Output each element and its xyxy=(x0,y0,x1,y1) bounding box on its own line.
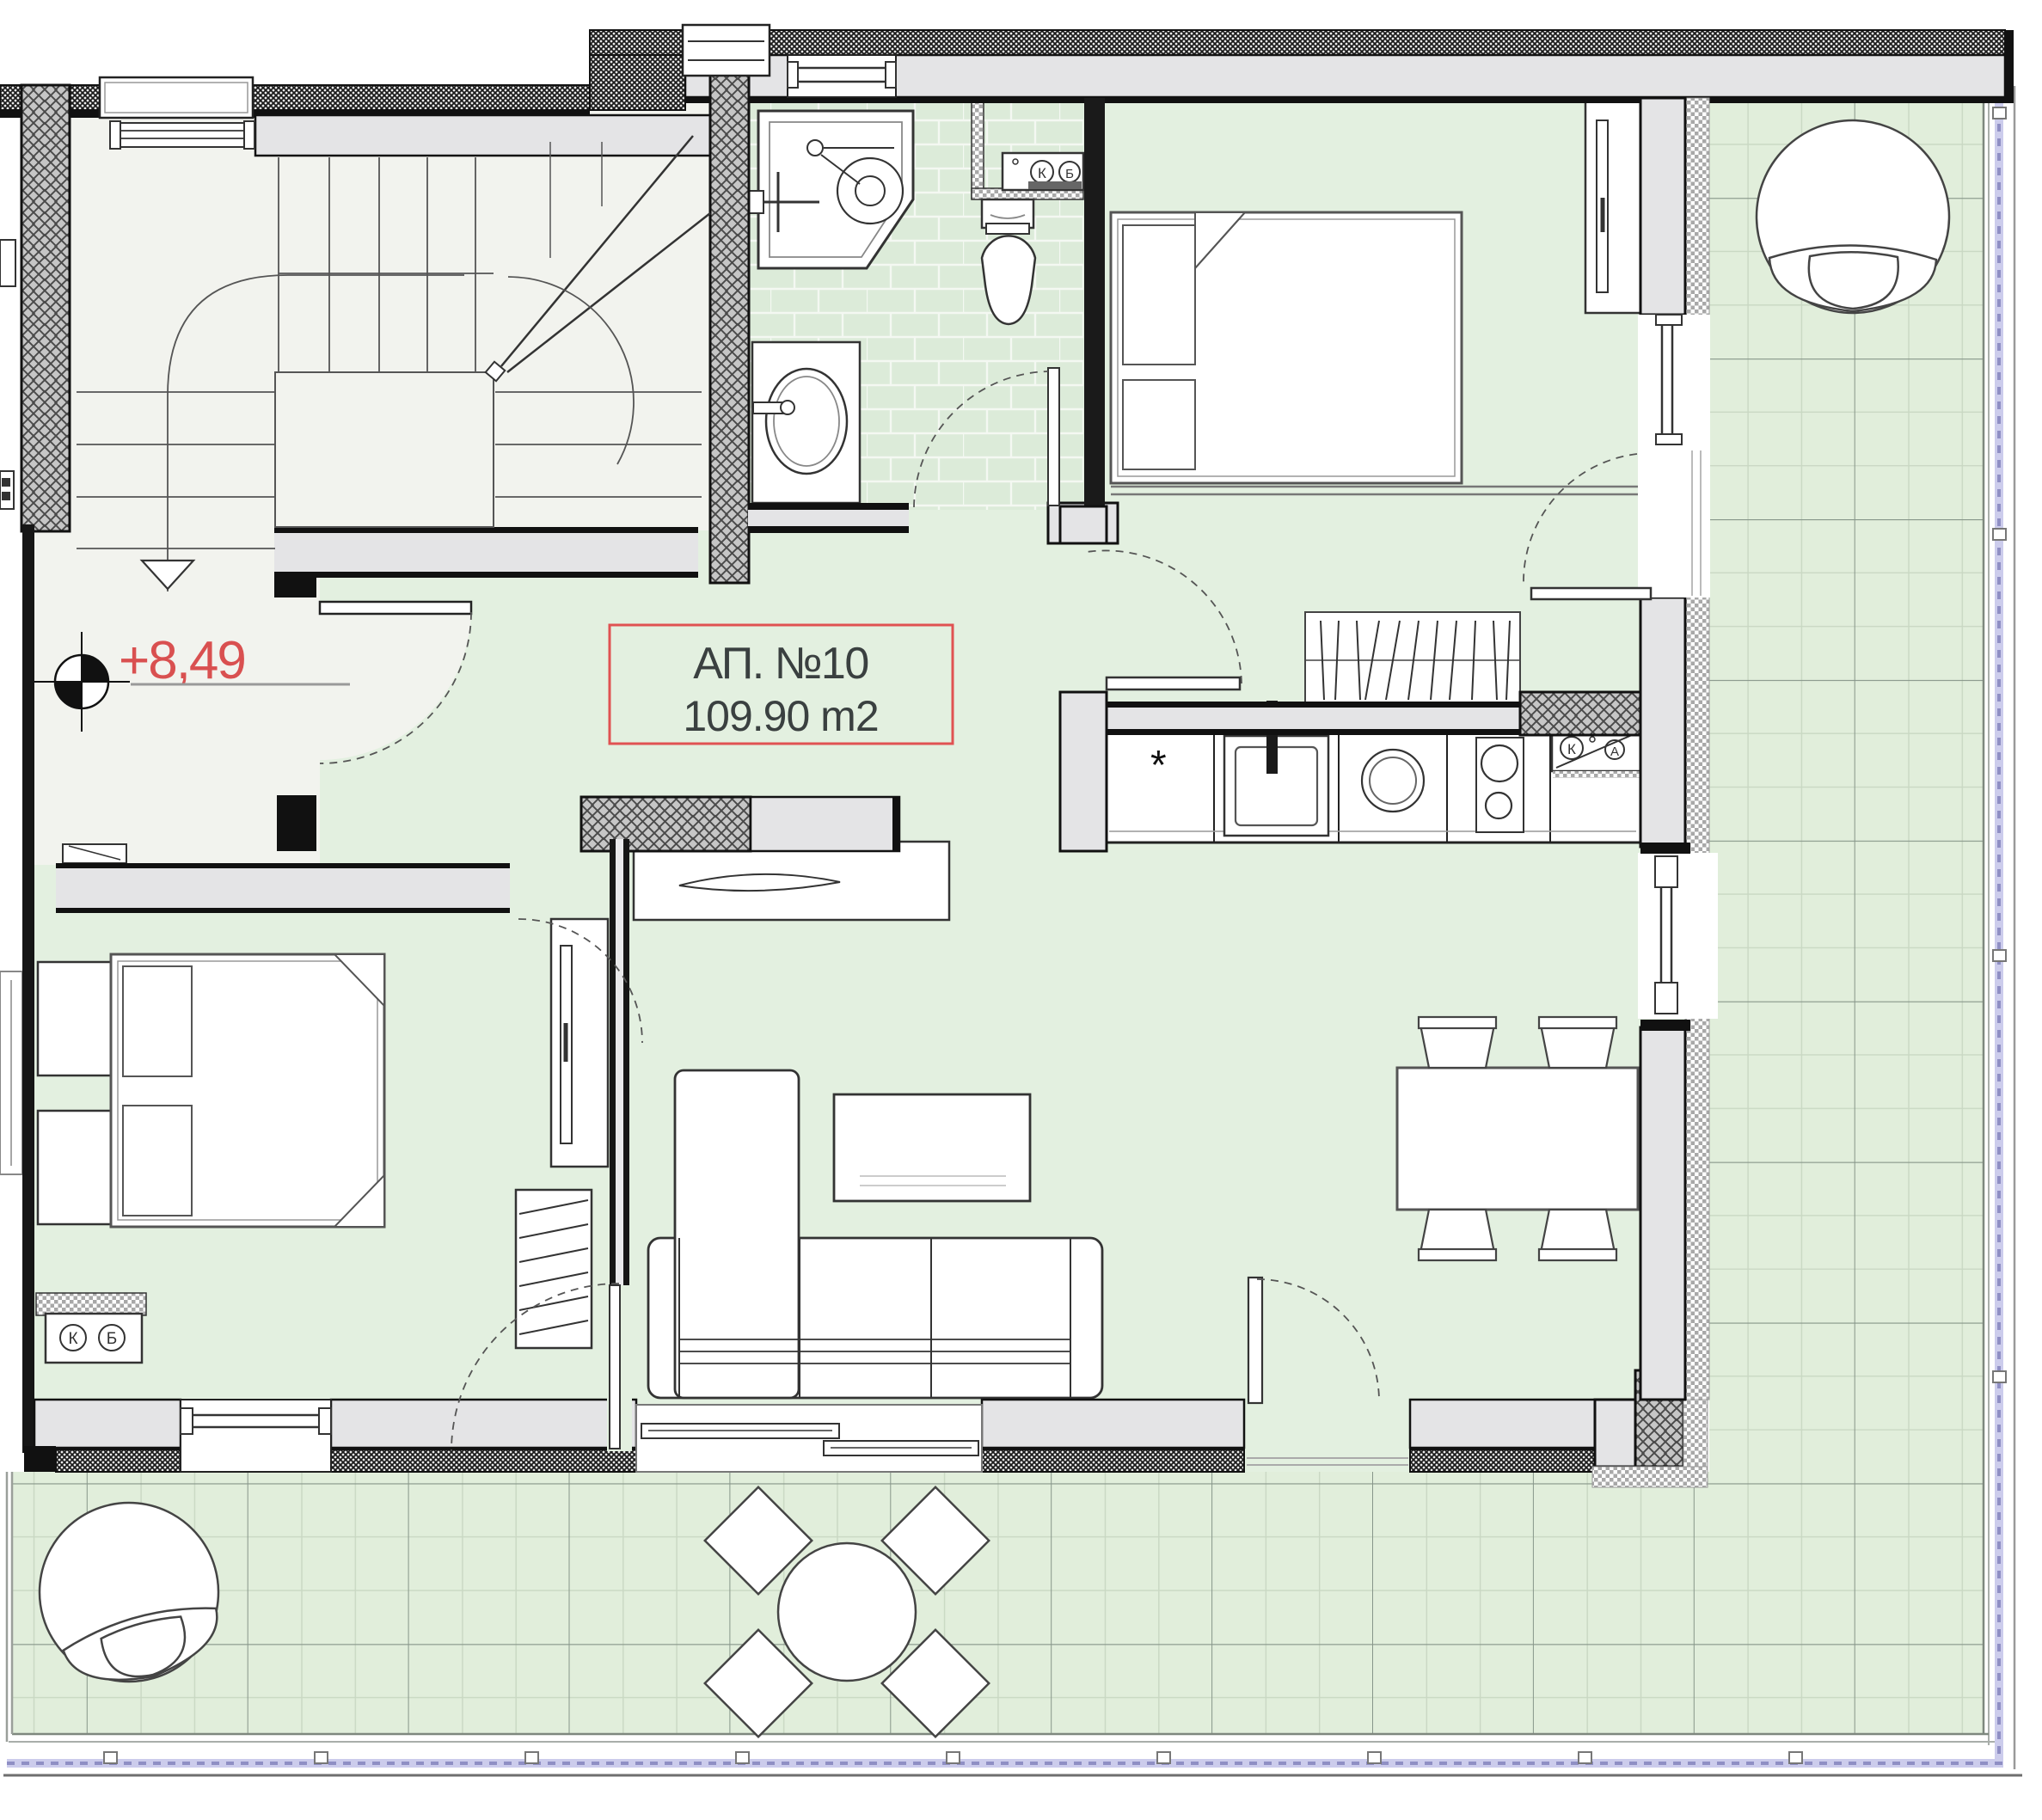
svg-text:А: А xyxy=(1610,745,1619,759)
svg-text:*: * xyxy=(1150,743,1167,788)
svg-text:К: К xyxy=(1567,741,1576,757)
svg-text:АП. №10: АП. №10 xyxy=(693,639,868,689)
svg-text:109.90 m2: 109.90 m2 xyxy=(683,692,878,740)
svg-text:Б: Б xyxy=(1065,167,1074,181)
svg-text:К: К xyxy=(1038,165,1046,181)
svg-text:К: К xyxy=(68,1330,77,1348)
svg-text:Б: Б xyxy=(107,1330,117,1348)
svg-text:+8,49: +8,49 xyxy=(119,631,245,690)
